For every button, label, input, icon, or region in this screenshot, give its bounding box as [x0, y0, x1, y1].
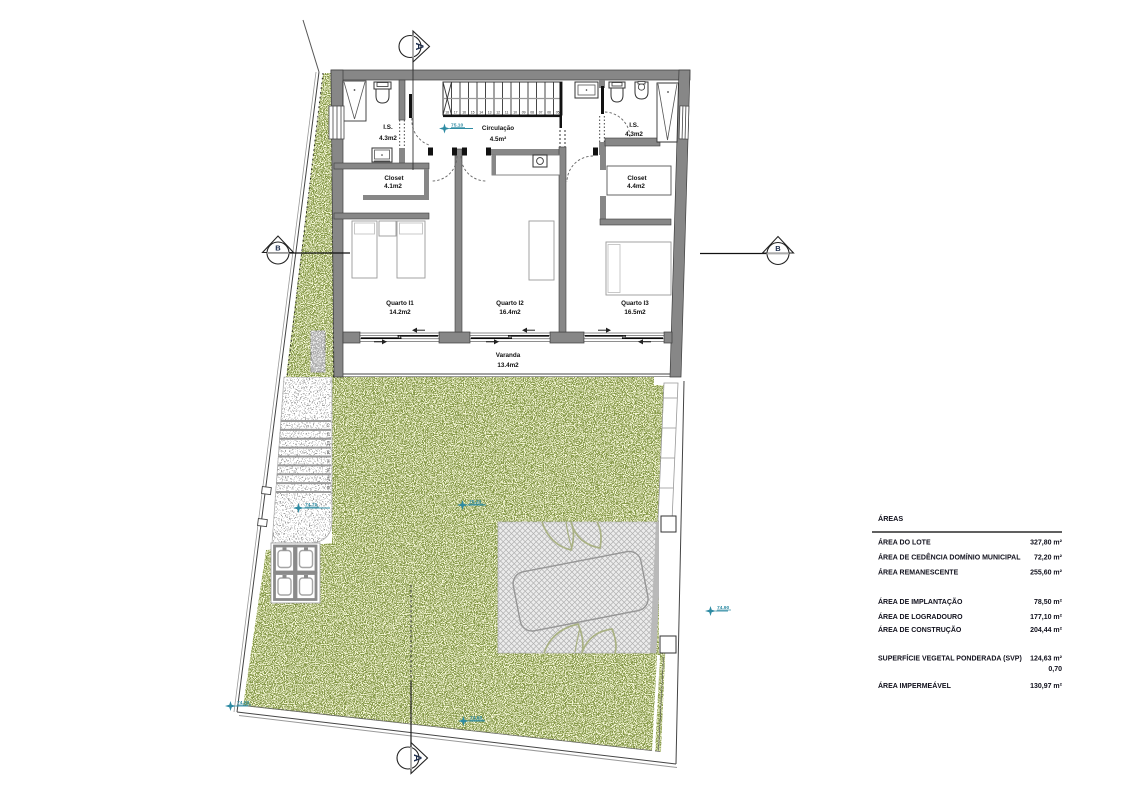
svg-text:08: 08 — [530, 111, 534, 115]
svg-text:130,97 m²: 130,97 m² — [1030, 683, 1063, 690]
svg-text:ÁREA IMPERMEÁVEL: ÁREA IMPERMEÁVEL — [878, 681, 952, 690]
svg-text:16.4m2: 16.4m2 — [499, 309, 521, 316]
svg-text:0,70: 0,70 — [1048, 666, 1062, 673]
svg-text:14: 14 — [479, 111, 483, 115]
svg-text:Closet: Closet — [384, 175, 404, 182]
svg-text:327,80 m²: 327,80 m² — [1030, 540, 1063, 547]
svg-text:05: 05 — [326, 459, 330, 463]
svg-text:02: 02 — [326, 432, 330, 436]
svg-text:I.S.: I.S. — [629, 122, 639, 129]
svg-text:Varanda: Varanda — [496, 352, 521, 359]
svg-text:4.4m2: 4.4m2 — [627, 183, 645, 190]
svg-text:78,50 m²: 78,50 m² — [1034, 599, 1063, 606]
svg-text:07: 07 — [326, 477, 330, 481]
svg-text:04: 04 — [326, 450, 330, 454]
svg-text:15: 15 — [471, 111, 475, 115]
svg-text:72,20 m²: 72,20 m² — [1034, 555, 1063, 562]
svg-text:SUPERFÍCIE VEGETAL PONDERADA (: SUPERFÍCIE VEGETAL PONDERADA (SVP) — [878, 654, 1022, 663]
svg-text:16.5m2: 16.5m2 — [624, 309, 646, 316]
svg-text:4.1m2: 4.1m2 — [384, 183, 402, 190]
svg-text:ÁREA DE LOGRADOURO: ÁREA DE LOGRADOURO — [878, 612, 963, 621]
svg-text:4.3m2: 4.3m2 — [625, 131, 643, 138]
svg-text:16: 16 — [462, 111, 466, 115]
svg-text:03: 03 — [326, 441, 330, 445]
svg-text:ÁREA DO LOTE: ÁREA DO LOTE — [878, 538, 931, 547]
svg-text:B: B — [775, 244, 781, 253]
svg-text:06: 06 — [547, 111, 551, 115]
svg-text:06: 06 — [326, 468, 330, 472]
svg-text:Closet: Closet — [627, 175, 647, 182]
svg-text:4.3m2: 4.3m2 — [379, 135, 397, 142]
svg-text:204,44 m²: 204,44 m² — [1030, 627, 1063, 634]
svg-text:10: 10 — [513, 111, 517, 115]
svg-text:08: 08 — [326, 486, 330, 490]
svg-text:ÁREA DE CONSTRUÇÃO: ÁREA DE CONSTRUÇÃO — [878, 625, 962, 634]
svg-text:4.5m²: 4.5m² — [490, 136, 506, 143]
svg-text:Quarto I2: Quarto I2 — [496, 300, 524, 307]
svg-text:A: A — [411, 754, 423, 762]
svg-text:ÁREA DE CEDÊNCIA DOMÍNIO MUNIC: ÁREA DE CEDÊNCIA DOMÍNIO MUNICIPAL — [878, 553, 1021, 562]
svg-text:I.S.: I.S. — [383, 124, 393, 131]
svg-text:B: B — [275, 244, 281, 253]
svg-text:07: 07 — [539, 111, 543, 115]
svg-text:Quarto I3: Quarto I3 — [621, 300, 649, 307]
svg-text:A: A — [413, 43, 425, 51]
svg-text:124,63 m²: 124,63 m² — [1030, 656, 1063, 663]
svg-text:05: 05 — [556, 111, 560, 115]
svg-text:Circulação: Circulação — [482, 125, 514, 132]
svg-text:13.4m2: 13.4m2 — [497, 362, 519, 369]
svg-text:13: 13 — [488, 111, 492, 115]
svg-text:09: 09 — [522, 111, 526, 115]
svg-text:Quarto I1: Quarto I1 — [386, 300, 414, 307]
svg-text:255,60 m²: 255,60 m² — [1030, 570, 1063, 577]
svg-text:14.2m2: 14.2m2 — [389, 309, 411, 316]
svg-text:17: 17 — [454, 111, 458, 115]
svg-text:ÁREAS: ÁREAS — [878, 514, 903, 523]
svg-text:01: 01 — [326, 424, 330, 428]
svg-text:ÁREA DE IMPLANTAÇÃO: ÁREA DE IMPLANTAÇÃO — [878, 597, 963, 606]
svg-text:12: 12 — [496, 111, 500, 115]
svg-text:18: 18 — [445, 111, 449, 115]
svg-text:ÁREA REMANESCENTE: ÁREA REMANESCENTE — [878, 568, 959, 577]
svg-text:11: 11 — [505, 111, 509, 115]
svg-text:177,10 m²: 177,10 m² — [1030, 614, 1063, 621]
